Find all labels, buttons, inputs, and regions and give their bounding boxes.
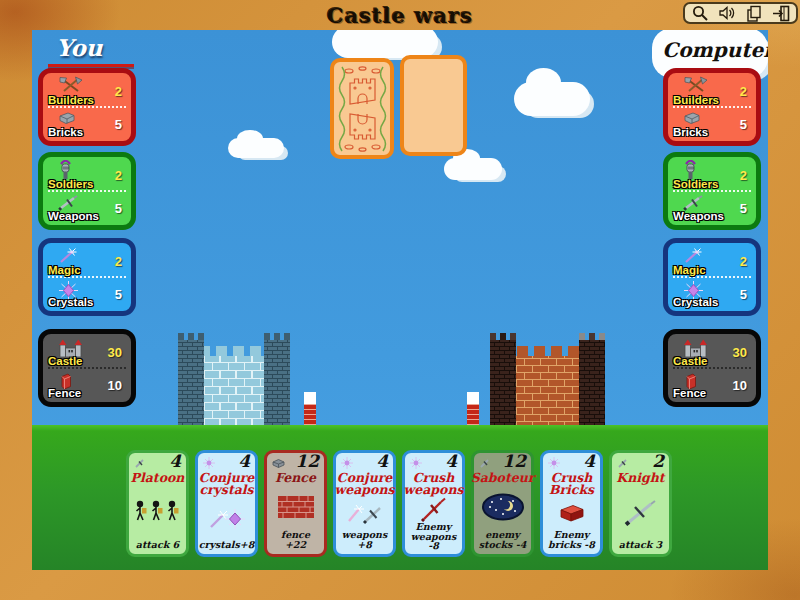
builders-label: Builders — [673, 94, 719, 106]
card-effect: Enemy weapons -8 — [407, 522, 460, 555]
red-sword-art — [419, 496, 449, 522]
card-title: Crush weapons — [404, 472, 464, 496]
card-cost: 4 — [169, 451, 181, 471]
card-title: Platoon — [131, 472, 185, 484]
fence-post-top — [467, 392, 479, 404]
wand-and-crystal-art — [208, 496, 246, 540]
crystals-label: Crystals — [48, 296, 93, 308]
hand-card-platoon[interactable]: 4 Platoon attack 6 — [126, 450, 189, 557]
castle-count: 30 — [108, 345, 122, 360]
card-effect: fence +22 — [269, 530, 322, 553]
bricks-label: Bricks — [48, 126, 83, 138]
card-cost: 2 — [652, 451, 664, 471]
played-card-slot — [400, 55, 467, 156]
soldiers-count: 2 — [115, 168, 122, 183]
cloud — [228, 138, 284, 158]
card-hand: 4 Platoon attack 6 4 Conjure crystals — [126, 450, 672, 557]
you-soldiers-panel: 2 Soldiers 5 Weapons — [38, 152, 136, 230]
hand-card-fence[interactable]: 12 Fence fence +22 — [264, 450, 327, 557]
wand-and-sword-art — [346, 496, 384, 530]
bricks-count: 5 — [115, 117, 122, 132]
wall — [516, 346, 583, 425]
you-builders-panel: 2 Builders 5 Bricks — [38, 68, 136, 146]
brick-wall-art — [277, 484, 315, 530]
crystals-label: Crystals — [673, 296, 718, 308]
magic-count: 2 — [740, 254, 747, 269]
card-title: Conjure crystals — [199, 472, 255, 496]
magic-count: 2 — [115, 254, 122, 269]
you-magic-panel: 2 Magic 5 Crystals — [38, 238, 136, 316]
computer-magic-panel: 2 Magic 5 Crystals — [663, 238, 761, 316]
hand-card-saboteur[interactable]: 12 Saboteur enemy stocks -4 — [471, 450, 534, 557]
computer-fence-post — [467, 392, 479, 425]
cloud — [514, 82, 590, 116]
exit-door-icon[interactable] — [772, 5, 790, 22]
soldiers-count: 2 — [740, 168, 747, 183]
fence-post-bricks — [304, 404, 316, 425]
computer-builders-panel: 2 Builders 5 Bricks — [663, 68, 761, 146]
card-cost: 4 — [238, 451, 250, 471]
hand-card-knight[interactable]: 2 Knight attack 3 — [609, 450, 672, 557]
card-cost: 12 — [502, 451, 526, 471]
game-board: You Computer 2 Builders 5 Bricks 2 Soldi… — [32, 30, 768, 570]
magnifier-icon[interactable] — [691, 5, 709, 22]
fence-label: Fence — [673, 387, 706, 399]
soldiers-label: Soldiers — [673, 178, 718, 190]
computer-soldiers-panel: 2 Soldiers 5 Weapons — [663, 152, 761, 230]
hand-card-conjure-weapons[interactable]: 4 Conjure weapons weapons +8 — [333, 450, 396, 557]
card-cost: 4 — [376, 451, 388, 471]
card-cost: 12 — [295, 451, 319, 471]
crystals-count: 5 — [115, 287, 122, 302]
cloud — [332, 30, 438, 58]
you-castle-panel: 30 Castle 10 Fence — [38, 329, 136, 407]
hand-card-crush-bricks[interactable]: 4 Crush Bricks Enemy bricks -8 — [540, 450, 603, 557]
speaker-icon[interactable] — [718, 5, 736, 22]
computer-castle — [484, 330, 610, 429]
card-cost: 4 — [583, 451, 595, 471]
fence-label: Fence — [48, 387, 81, 399]
card-title: Saboteur — [471, 472, 535, 484]
card-title: Conjure weapons — [335, 472, 395, 496]
weapons-label: Weapons — [48, 210, 99, 222]
fence-count: 10 — [108, 378, 122, 393]
pages-icon[interactable] — [745, 5, 763, 22]
magic-label: Magic — [48, 264, 81, 276]
deck-card-back[interactable] — [330, 58, 394, 159]
bricks-label: Bricks — [673, 126, 708, 138]
weapons-count: 5 — [115, 201, 122, 216]
card-effect: attack 3 — [619, 540, 662, 554]
hand-card-crush-weapons[interactable]: 4 Crush weapons Enemy weapons -8 — [402, 450, 465, 557]
castle-count: 30 — [733, 345, 747, 360]
card-effect: Enemy bricks -8 — [545, 530, 598, 553]
castle-label: Castle — [673, 355, 708, 367]
card-effect: crystals+8 — [199, 540, 255, 554]
hand-card-conjure-crystals[interactable]: 4 Conjure crystals crystals+8 — [195, 450, 258, 557]
card-effect: attack 6 — [136, 540, 179, 554]
computer-header: Computer — [662, 38, 768, 62]
your-castle — [172, 330, 296, 429]
castle-label: Castle — [48, 355, 83, 367]
fence-count: 10 — [733, 378, 747, 393]
card-effect: enemy stocks -4 — [476, 530, 529, 553]
you-underline — [48, 64, 134, 67]
builders-count: 2 — [115, 84, 122, 99]
three-soldiers-art — [135, 484, 181, 540]
soldiers-label: Soldiers — [48, 178, 93, 190]
computer-castle-panel: 30 Castle 10 Fence — [663, 329, 761, 407]
red-brick-art — [557, 496, 587, 530]
builders-label: Builders — [48, 94, 94, 106]
cloud — [444, 158, 502, 180]
fence-post-bricks — [467, 404, 479, 425]
magic-label: Magic — [673, 264, 706, 276]
card-title: Knight — [616, 472, 664, 484]
weapons-label: Weapons — [673, 210, 724, 222]
sword-art — [623, 484, 659, 540]
card-effect: weapons +8 — [338, 530, 391, 553]
game-title: Castle wars — [0, 3, 800, 28]
bricks-count: 5 — [740, 117, 747, 132]
you-header: You — [56, 34, 102, 61]
crystals-count: 5 — [740, 287, 747, 302]
builders-count: 2 — [740, 84, 747, 99]
fence-post-top — [304, 392, 316, 404]
night-moon-art — [481, 484, 525, 530]
card-title: Fence — [275, 472, 316, 484]
card-cost: 4 — [445, 451, 457, 471]
card-title: Crush Bricks — [545, 472, 598, 496]
window-toolbar — [683, 2, 798, 24]
weapons-count: 5 — [740, 201, 747, 216]
your-fence-post — [304, 392, 316, 425]
wall — [198, 346, 264, 425]
